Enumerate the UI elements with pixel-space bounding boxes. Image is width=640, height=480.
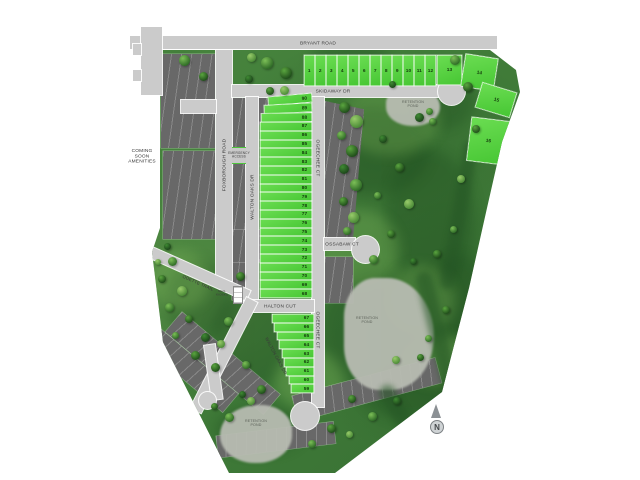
tree	[247, 397, 255, 405]
lot-number: 74	[302, 238, 307, 243]
tree	[177, 286, 187, 296]
lot-number: 86	[302, 133, 307, 138]
tree	[191, 351, 200, 360]
tree	[346, 145, 358, 157]
lot-number: 2	[319, 68, 322, 73]
tree	[165, 303, 174, 312]
foxborough-stub	[181, 100, 216, 113]
tree	[379, 135, 387, 143]
tree	[339, 197, 348, 206]
tree	[245, 75, 253, 83]
lot-number: 65	[304, 334, 309, 339]
tree	[463, 82, 473, 92]
lot-number: 80	[302, 186, 307, 191]
lot-number: 16	[486, 138, 492, 143]
tree	[224, 317, 233, 326]
lot-82[interactable]: 82	[260, 166, 312, 175]
tree	[239, 391, 246, 398]
site-plan-canvas: 1234567891011121314151690898887868584838…	[0, 0, 640, 480]
tree	[199, 72, 208, 81]
lot-67[interactable]: 67	[272, 314, 314, 323]
lot-number: 77	[302, 212, 307, 217]
tree	[387, 230, 395, 238]
lot-number: 66	[304, 325, 309, 330]
lot-number: 83	[302, 159, 307, 164]
lot-number: 69	[302, 282, 307, 287]
tree	[217, 340, 225, 348]
lot-6[interactable]: 6	[359, 55, 370, 86]
lot-64[interactable]: 64	[279, 340, 314, 349]
lot-number: 10	[406, 68, 411, 73]
mail-kiosks-icon	[233, 286, 243, 304]
tree	[257, 385, 266, 394]
lot-number: 84	[302, 150, 307, 155]
lot-number: 60	[304, 378, 309, 383]
pond-label-line2: POND	[402, 104, 424, 108]
tree	[185, 315, 193, 323]
tree	[393, 397, 401, 405]
lot-79[interactable]: 79	[260, 192, 312, 201]
lot-number: 81	[302, 177, 307, 182]
lot-72[interactable]: 72	[260, 254, 312, 263]
lot-80[interactable]: 80	[260, 184, 312, 193]
emergency-access-label: EMERGENCY ACCESS	[228, 151, 250, 158]
tree	[236, 272, 245, 281]
tree	[280, 67, 292, 79]
lot-number: 11	[417, 68, 422, 73]
lot-15[interactable]: 15	[475, 82, 517, 117]
tree	[346, 431, 353, 438]
lot-11[interactable]: 11	[414, 55, 425, 86]
lot-number: 89	[302, 105, 308, 110]
tree	[308, 440, 316, 448]
lot-number: 63	[304, 351, 309, 356]
lot-87[interactable]: 87	[260, 122, 312, 131]
compass-n: N	[430, 420, 444, 434]
tree	[348, 212, 359, 223]
lot-number: 87	[302, 124, 307, 129]
bryant-road-label: BRYANT ROAD	[300, 40, 336, 45]
lot-88[interactable]: 88	[261, 113, 312, 123]
lot-number: 64	[304, 342, 309, 347]
ogeechee-ct-label-1: OGEECHEE CT	[315, 140, 320, 177]
lot-number: 6	[363, 68, 366, 73]
lot-70[interactable]: 70	[260, 272, 312, 281]
lot-78[interactable]: 78	[260, 201, 312, 210]
tree	[266, 87, 274, 95]
lot-60[interactable]: 60	[289, 376, 314, 385]
retention-pond-ne-label: RETENTION POND	[402, 100, 424, 108]
tree	[201, 333, 210, 342]
tree	[247, 53, 256, 62]
lot-63[interactable]: 63	[282, 349, 314, 358]
lot-62[interactable]: 62	[284, 358, 314, 367]
lot-3[interactable]: 3	[326, 55, 337, 86]
tree	[225, 413, 234, 422]
lot-number: 70	[302, 274, 307, 279]
tree	[179, 55, 190, 66]
lot-73[interactable]: 73	[260, 245, 312, 254]
lot-number: 59	[304, 386, 309, 391]
pond-label-line2: POND	[245, 423, 267, 427]
lot-65[interactable]: 65	[277, 332, 314, 341]
tree	[429, 118, 436, 125]
lot-7[interactable]: 7	[370, 55, 381, 86]
lot-10[interactable]: 10	[403, 55, 414, 86]
tree	[395, 163, 404, 172]
ossabaw-ct-label: OSSABAW CT	[325, 241, 359, 246]
lot-number: 62	[304, 360, 309, 365]
coming-soon-label: COMING SOON AMENITIES	[128, 148, 155, 165]
lot-number: 3	[330, 68, 333, 73]
lot-84[interactable]: 84	[260, 148, 312, 157]
emergency-access-line2: ACCESS	[228, 155, 250, 159]
ogeechee-culdesac	[291, 402, 319, 430]
tree	[339, 102, 350, 113]
lot-59[interactable]: 59	[291, 384, 314, 393]
tree	[158, 275, 166, 283]
lot-61[interactable]: 61	[286, 367, 314, 376]
tree	[426, 108, 433, 115]
lot-number: 15	[493, 97, 500, 103]
future-lots-center-band	[232, 98, 246, 300]
tree	[450, 226, 457, 233]
tree	[164, 243, 171, 250]
tree	[327, 424, 336, 433]
tree	[369, 255, 378, 264]
tree	[350, 179, 362, 191]
walton-oaks-dr-upper-label: WALTON OAKS DR	[249, 174, 254, 219]
lot-number: 13	[447, 68, 452, 73]
west-stub-bump	[133, 44, 141, 55]
lot-68[interactable]: 68	[260, 289, 312, 298]
tree	[392, 356, 400, 364]
lot-74[interactable]: 74	[260, 236, 312, 245]
lot-number: 68	[302, 291, 307, 296]
tree	[472, 125, 480, 133]
lot-number: 90	[302, 96, 308, 101]
tree	[410, 258, 417, 265]
tree	[168, 257, 177, 266]
coming-soon-line3: AMENITIES	[128, 159, 155, 165]
mail-label-line2: KIOSKS	[216, 293, 228, 296]
tree	[417, 354, 424, 361]
tree	[348, 395, 356, 403]
foxborough-road-label: FOXBOROUGH ROAD	[221, 139, 226, 192]
tree	[211, 403, 218, 410]
lot-12[interactable]: 12	[425, 55, 436, 86]
west-stub-bump	[133, 70, 141, 81]
tree	[457, 175, 465, 183]
mail-kiosks-label: MAIL KIOSKS	[216, 290, 228, 297]
lot-number: 88	[302, 115, 307, 120]
north-compass: N	[424, 404, 448, 446]
lot-76[interactable]: 76	[260, 219, 312, 228]
lot-number: 78	[302, 203, 307, 208]
tree	[425, 335, 432, 342]
lot-75[interactable]: 75	[260, 228, 312, 237]
lot-number: 14	[476, 70, 482, 76]
halton-cut-label: HALTON CUT	[264, 303, 296, 308]
lot-number: 4	[341, 68, 344, 73]
pond-label-line2: POND	[356, 320, 378, 324]
lot-71[interactable]: 71	[260, 263, 312, 272]
lot-2[interactable]: 2	[315, 55, 326, 86]
tree	[337, 131, 346, 140]
retention-pond-e-label: RETENTION POND	[356, 316, 378, 324]
lot-number: 61	[304, 369, 309, 374]
retention-pond-s-label: RETENTION POND	[245, 419, 267, 427]
lot-83[interactable]: 83	[260, 157, 312, 166]
tree	[242, 361, 250, 369]
lot-number: 9	[396, 68, 399, 73]
tree	[343, 227, 351, 235]
lot-number: 82	[302, 168, 307, 173]
tree	[442, 306, 450, 314]
lot-77[interactable]: 77	[260, 210, 312, 219]
lot-number: 76	[302, 221, 307, 226]
lot-number: 73	[302, 247, 307, 252]
tree	[211, 363, 220, 372]
lot-16[interactable]: 16	[466, 117, 510, 165]
lot-1[interactable]: 1	[304, 55, 315, 86]
tree	[339, 164, 349, 174]
lot-number: 79	[302, 194, 307, 199]
site-grounds: 1234567891011121314151690898887868584838…	[0, 0, 640, 480]
tree	[350, 115, 363, 128]
lot-number: 7	[374, 68, 377, 73]
lot-number: 67	[304, 316, 309, 321]
tree	[155, 259, 161, 265]
west-stub-road	[141, 27, 162, 95]
lot-number: 71	[302, 265, 307, 270]
tree	[261, 57, 273, 69]
tree	[172, 332, 179, 339]
lot-4[interactable]: 4	[337, 55, 348, 86]
lot-85[interactable]: 85	[260, 140, 312, 149]
tree	[433, 250, 441, 258]
lot-number: 85	[302, 142, 307, 147]
tree	[450, 55, 460, 65]
tree	[389, 81, 396, 88]
north-arrow-icon	[431, 404, 441, 418]
skidaway-dr-label: SKIDAWAY DR	[316, 88, 351, 93]
lot-number: 5	[352, 68, 355, 73]
lot-number: 75	[302, 230, 307, 235]
lot-81[interactable]: 81	[260, 175, 312, 184]
ogeechee-ct-label-2: OGEECHEE CT	[315, 312, 320, 349]
lot-66[interactable]: 66	[274, 323, 314, 332]
lot-number: 12	[428, 68, 433, 73]
lot-69[interactable]: 69	[260, 280, 312, 289]
lot-number: 8	[385, 68, 388, 73]
tree	[404, 199, 414, 209]
tree	[374, 192, 381, 199]
tree	[280, 86, 289, 95]
lot-5[interactable]: 5	[348, 55, 359, 86]
lot-number: 1	[308, 68, 311, 73]
lot-86[interactable]: 86	[260, 131, 312, 140]
tree	[415, 113, 424, 122]
lot-number: 72	[302, 256, 307, 261]
tree	[368, 412, 377, 421]
future-lots-nw-2	[163, 151, 215, 239]
